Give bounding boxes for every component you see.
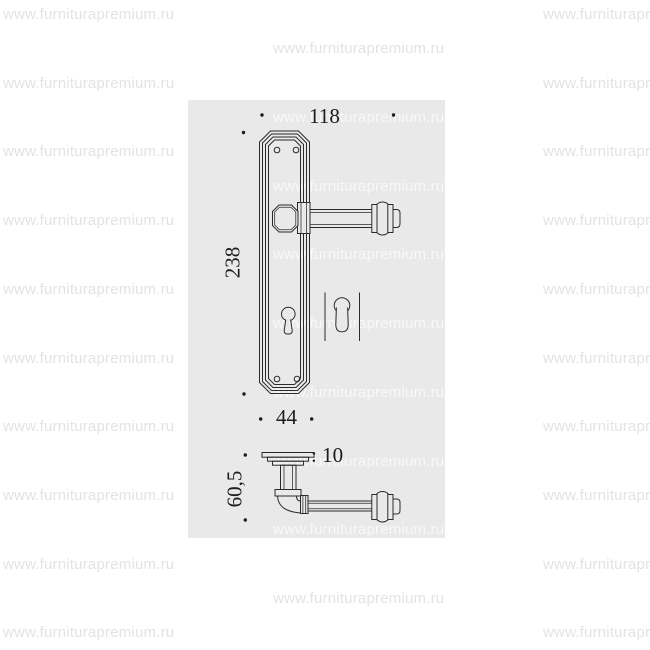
dimension-plate-width: 44 [276, 405, 298, 429]
page: www.furniturapremium.ruwww.furnituraprem… [0, 0, 650, 650]
backplate [260, 131, 310, 394]
lever-elbow-side [278, 496, 301, 513]
lever-shaft-side [308, 501, 373, 511]
plate-profile [262, 453, 314, 466]
lever-neck-side [275, 465, 301, 496]
lever-neck-front [273, 205, 299, 232]
dimension-side-thickness: : 10 [311, 443, 343, 467]
screw-holes [274, 147, 300, 382]
dimensions: 118 238 44 60,5 : 10 [221, 104, 396, 522]
dimension-side-height: 60,5 [223, 471, 247, 508]
cylinder-symbol [325, 293, 360, 342]
lever-collar-front [298, 203, 311, 234]
lever-knob-front [372, 202, 400, 235]
front-view [260, 131, 401, 394]
lever-handle-front [273, 202, 401, 235]
lever-collar-side [301, 496, 309, 514]
dimension-top-width: 118 [309, 104, 340, 128]
dimension-plate-height: 238 [221, 247, 245, 279]
keyhole [282, 307, 296, 334]
lever-knob-side [372, 492, 400, 523]
technical-drawing: 118 238 44 60,5 : 10 [0, 0, 650, 650]
